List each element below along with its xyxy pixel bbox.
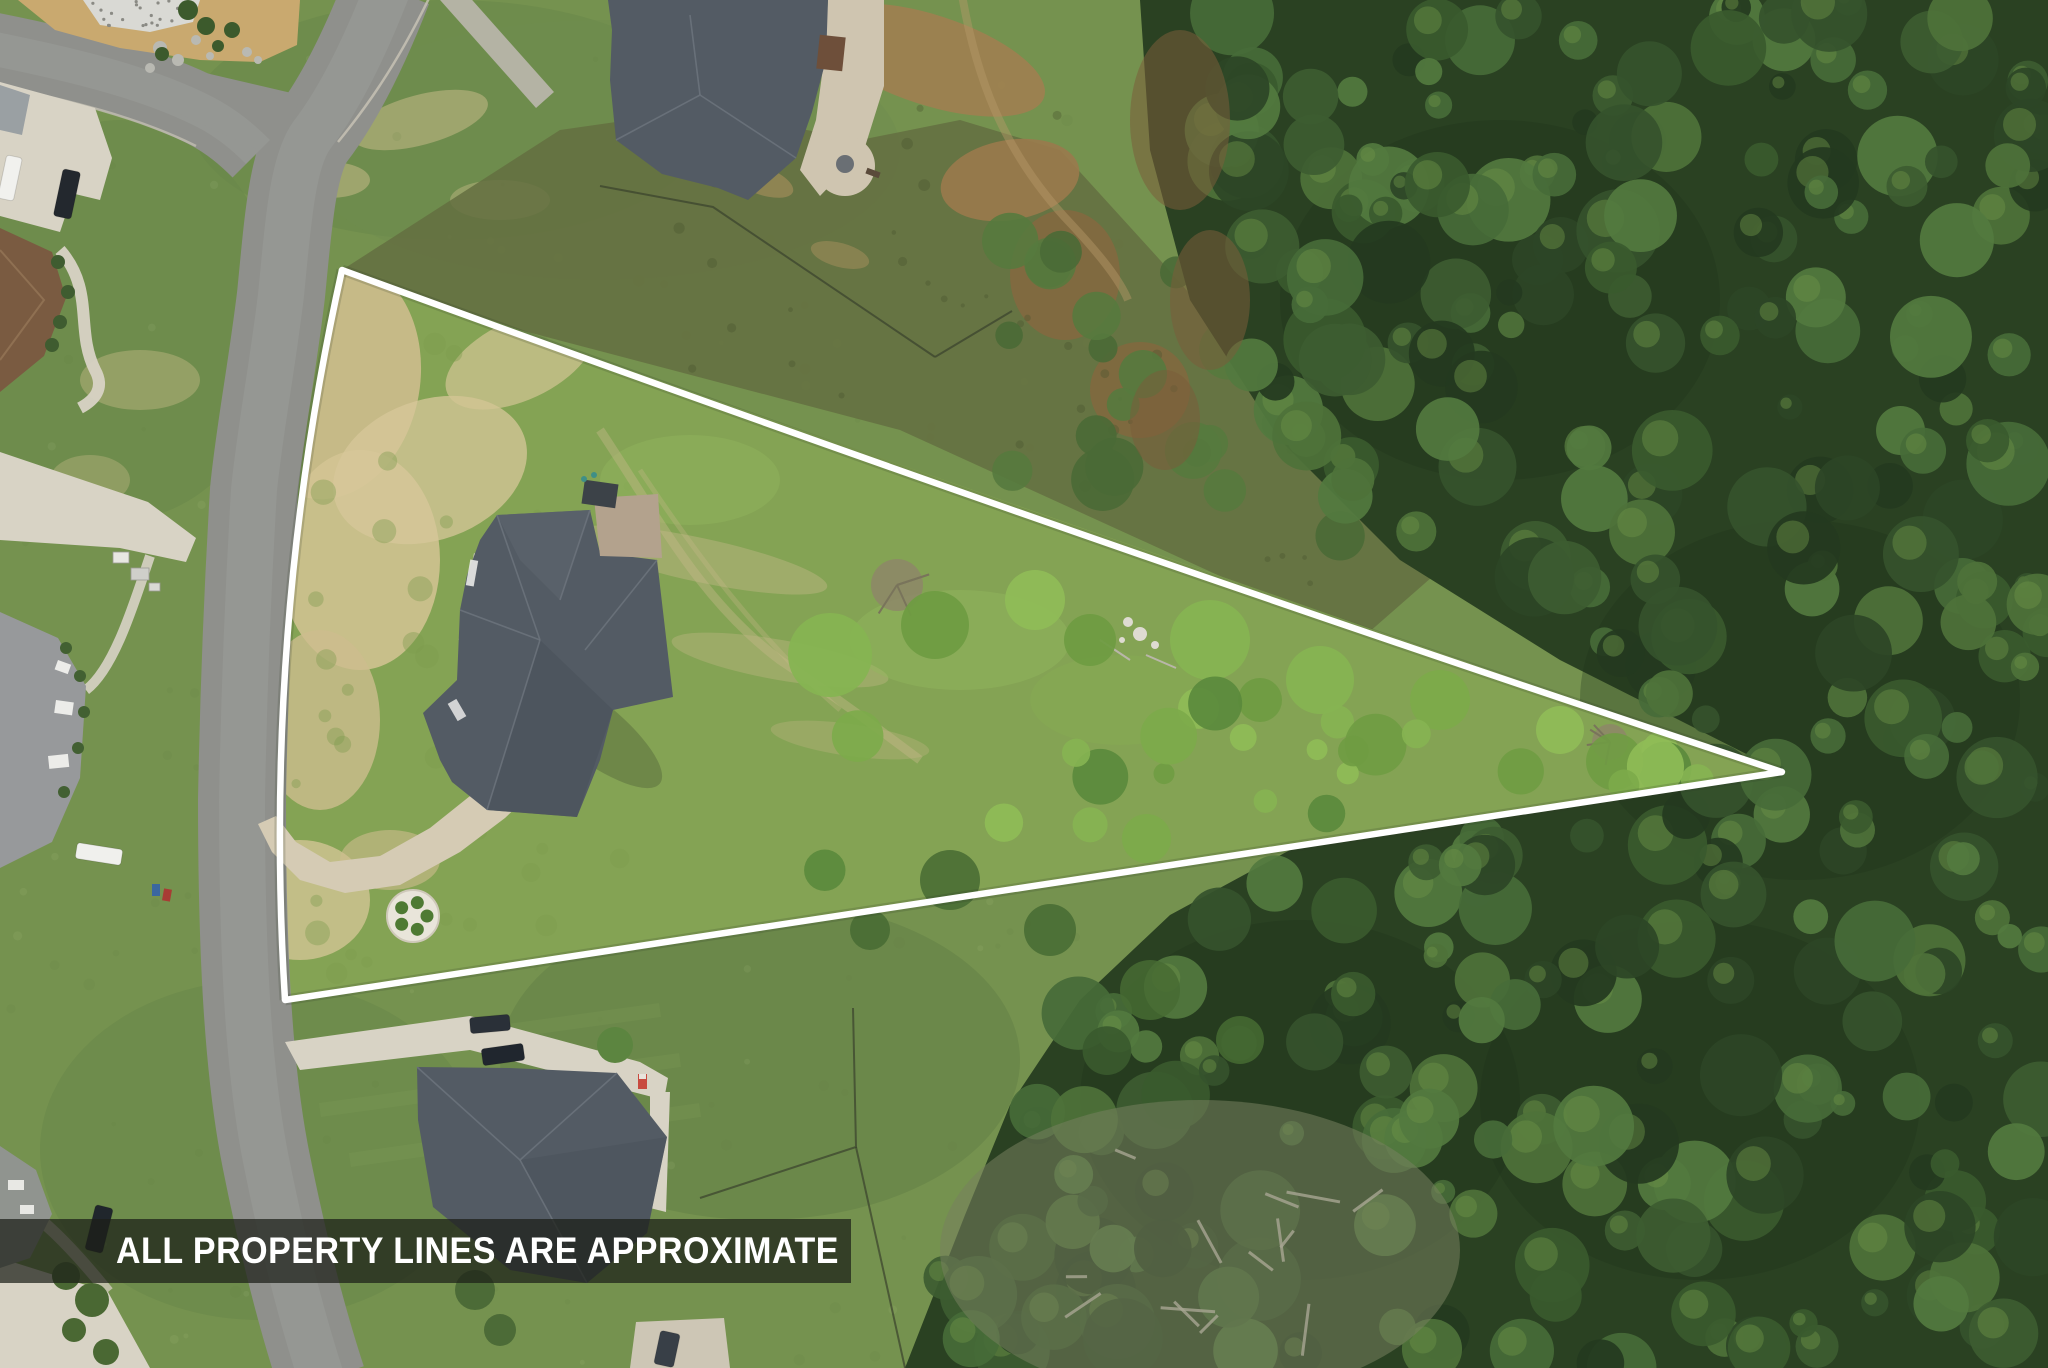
aerial-photo [0, 0, 2048, 1368]
disclaimer-text: ALL PROPERTY LINES ARE APPROXIMATE [116, 1230, 839, 1273]
disclaimer-banner: ALL PROPERTY LINES ARE APPROXIMATE [0, 1219, 851, 1283]
aerial-photo-stage: ALL PROPERTY LINES ARE APPROXIMATE [0, 0, 2048, 1368]
circular-planting-bed [387, 890, 439, 942]
